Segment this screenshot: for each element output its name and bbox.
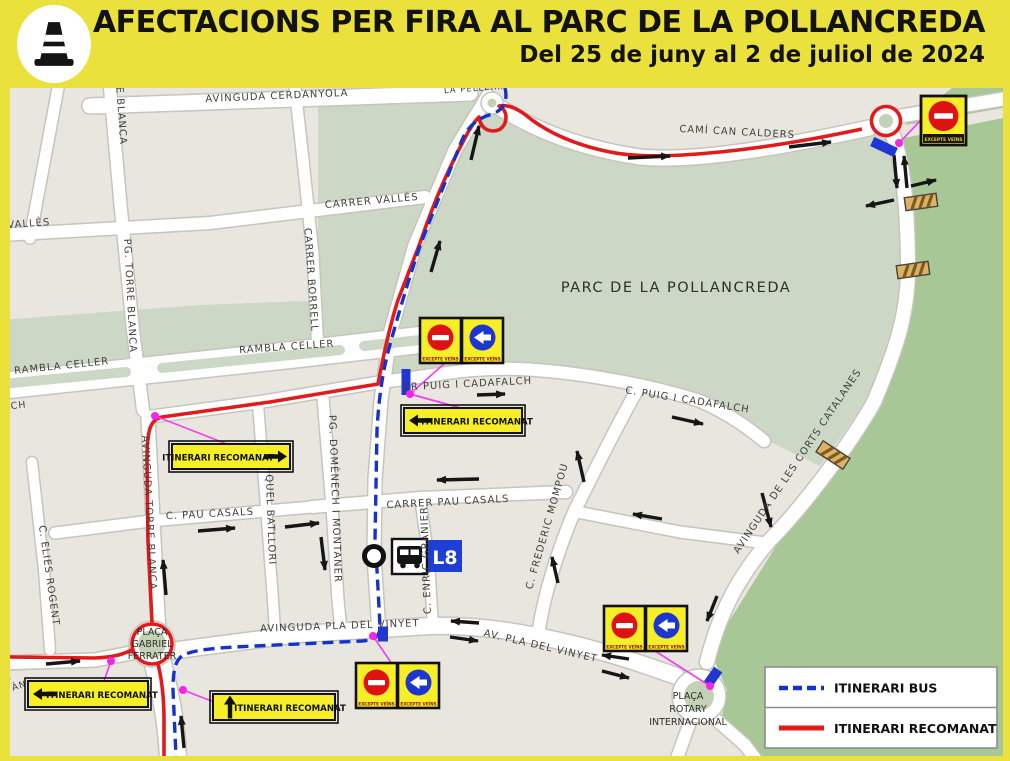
svg-text:ITINERARI RECOMANAT: ITINERARI RECOMANAT — [421, 418, 533, 428]
svg-text:ROTARY: ROTARY — [669, 704, 707, 715]
sign-fine-print: EXCEPTE VEÏNS — [648, 645, 684, 650]
legend-recomanat-label: ITINERARI RECOMANAT — [834, 721, 997, 736]
page-title: AFECTACIONS PER FIRA AL PARC DE LA POLLA… — [85, 6, 985, 40]
itinerari-recomanat-callout-up: ITINERARI RECOMANAT — [210, 691, 346, 723]
svg-text:ITINERARI RECOMANAT: ITINERARI RECOMANAT — [234, 704, 346, 714]
map-canvas: EXCEPTE VEÏNS EXCEPTE VEÏNS EXCEPTE VEÏN… — [10, 88, 1003, 756]
itinerari-recomanat-callout-left: ITINERARI RECOMANAT — [25, 678, 158, 710]
svg-text:GABRIEL: GABRIEL — [131, 639, 173, 650]
itinerari-recomanat-callout-left: ITINERARI RECOMANAT — [401, 405, 533, 436]
map-legend: ITINERARI BUS ITINERARI RECOMANAT — [765, 667, 997, 748]
no-entry-sign: EXCEPTE VEÏNS — [921, 96, 966, 145]
bus-line-badge: L8 — [432, 547, 457, 569]
svg-text:PLAÇA: PLAÇA — [137, 627, 168, 638]
sign-pair-rotary: EXCEPTE VEÏNS EXCEPTE VEÏNS — [604, 606, 687, 651]
svg-text:INTERNACIONAL: INTERNACIONAL — [649, 717, 727, 728]
sign-pair-vinyet: EXCEPTE VEÏNS EXCEPTE VEÏNS — [356, 663, 439, 708]
legend-bus-label: ITINERARI BUS — [834, 681, 937, 696]
page-subtitle: Del 25 de juny al 2 de juliol de 2024 — [85, 40, 985, 70]
traffic-cone-icon — [17, 5, 91, 83]
sign-fine-print: EXCEPTE VEÏNS — [358, 702, 394, 707]
sign-pair-puig-cadafalch: EXCEPTE VEÏNS EXCEPTE VEÏNS — [420, 318, 503, 363]
sign-fine-print: EXCEPTE VEÏNS — [606, 645, 642, 650]
bus-stop-marker — [365, 547, 384, 566]
sign-fine-print: EXCEPTE VEÏNS — [464, 357, 500, 362]
svg-text:ITINERARI RECOMANAT: ITINERARI RECOMANAT — [162, 454, 274, 464]
header-banner: AFECTACIONS PER FIRA AL PARC DE LA POLLA… — [0, 0, 1010, 88]
svg-text:PLAÇA: PLAÇA — [673, 691, 704, 702]
itinerari-recomanat-callout-right: ITINERARI RECOMANAT — [162, 441, 293, 472]
sign-fine-print: EXCEPTE VEÏNS — [422, 357, 458, 362]
sign-fine-print: EXCEPTE VEÏNS — [924, 136, 962, 143]
affectations-map: EXCEPTE VEÏNS EXCEPTE VEÏNS EXCEPTE VEÏN… — [10, 88, 1003, 756]
sign-fine-print: EXCEPTE VEÏNS — [400, 702, 436, 707]
svg-text:FERRATER: FERRATER — [128, 651, 177, 662]
svg-text:ITINERARI RECOMANAT: ITINERARI RECOMANAT — [46, 691, 158, 701]
park-name: PARC DE LA POLLANCREDA — [561, 280, 791, 296]
